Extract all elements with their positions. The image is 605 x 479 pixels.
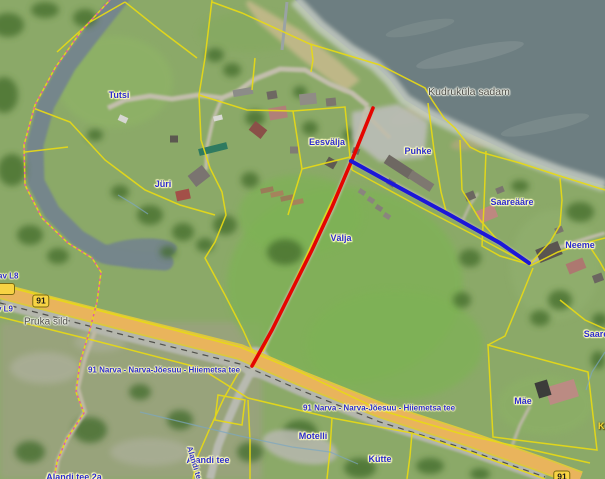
map-canvas[interactable]: Tutsi Jüri Eesvälja Puhke Välja Saareäär… xyxy=(0,0,605,479)
aerial-imagery xyxy=(0,0,605,479)
